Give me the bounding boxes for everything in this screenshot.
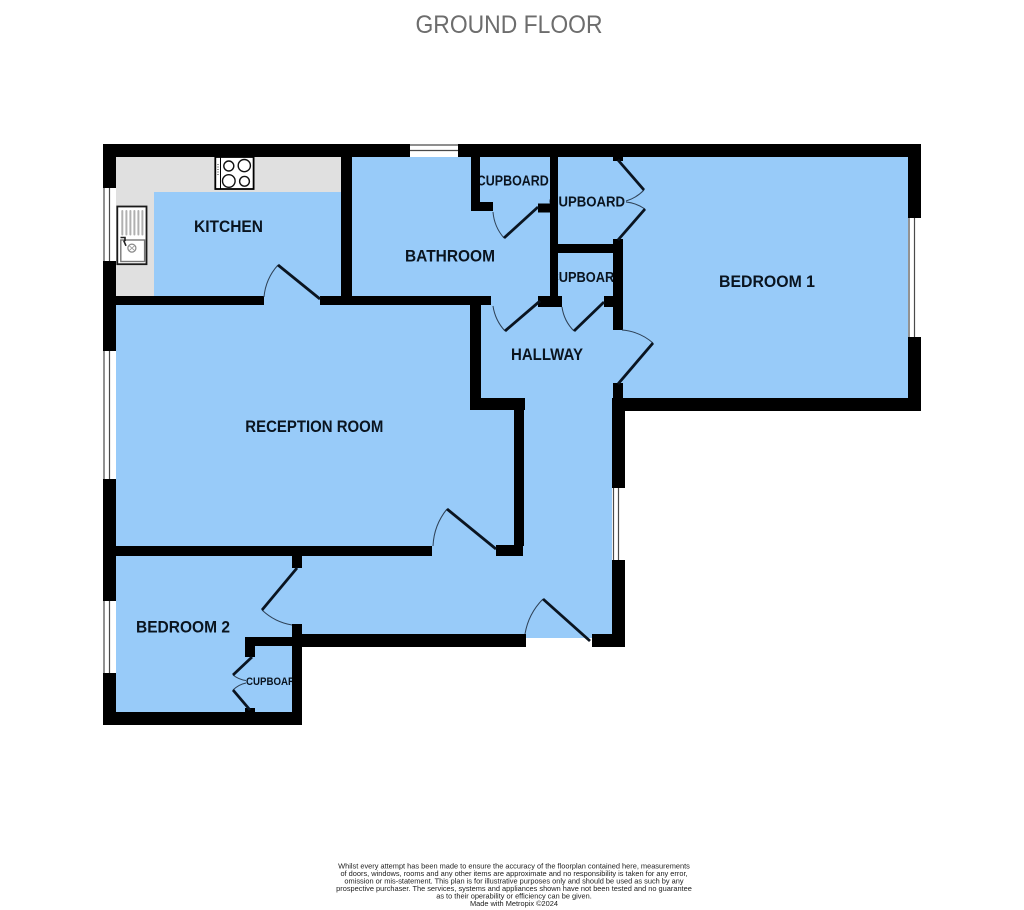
svg-text:BEDROOM 1: BEDROOM 1 [719, 273, 815, 291]
svg-text:BEDROOM 2: BEDROOM 2 [136, 619, 230, 637]
svg-text:CUPBOARD: CUPBOARD [550, 270, 624, 286]
svg-text:KITCHEN: KITCHEN [194, 218, 263, 236]
svg-text:Made with Metropix ©2024: Made with Metropix ©2024 [470, 899, 558, 908]
svg-text:GROUND FLOOR: GROUND FLOOR [416, 11, 603, 39]
svg-text:CUPBOARD: CUPBOARD [477, 174, 549, 190]
svg-text:CUPBOARD: CUPBOARD [549, 195, 625, 211]
svg-text:RECEPTION ROOM: RECEPTION ROOM [245, 418, 383, 436]
svg-text:BATHROOM: BATHROOM [405, 248, 495, 266]
svg-text:HALLWAY: HALLWAY [511, 346, 583, 364]
